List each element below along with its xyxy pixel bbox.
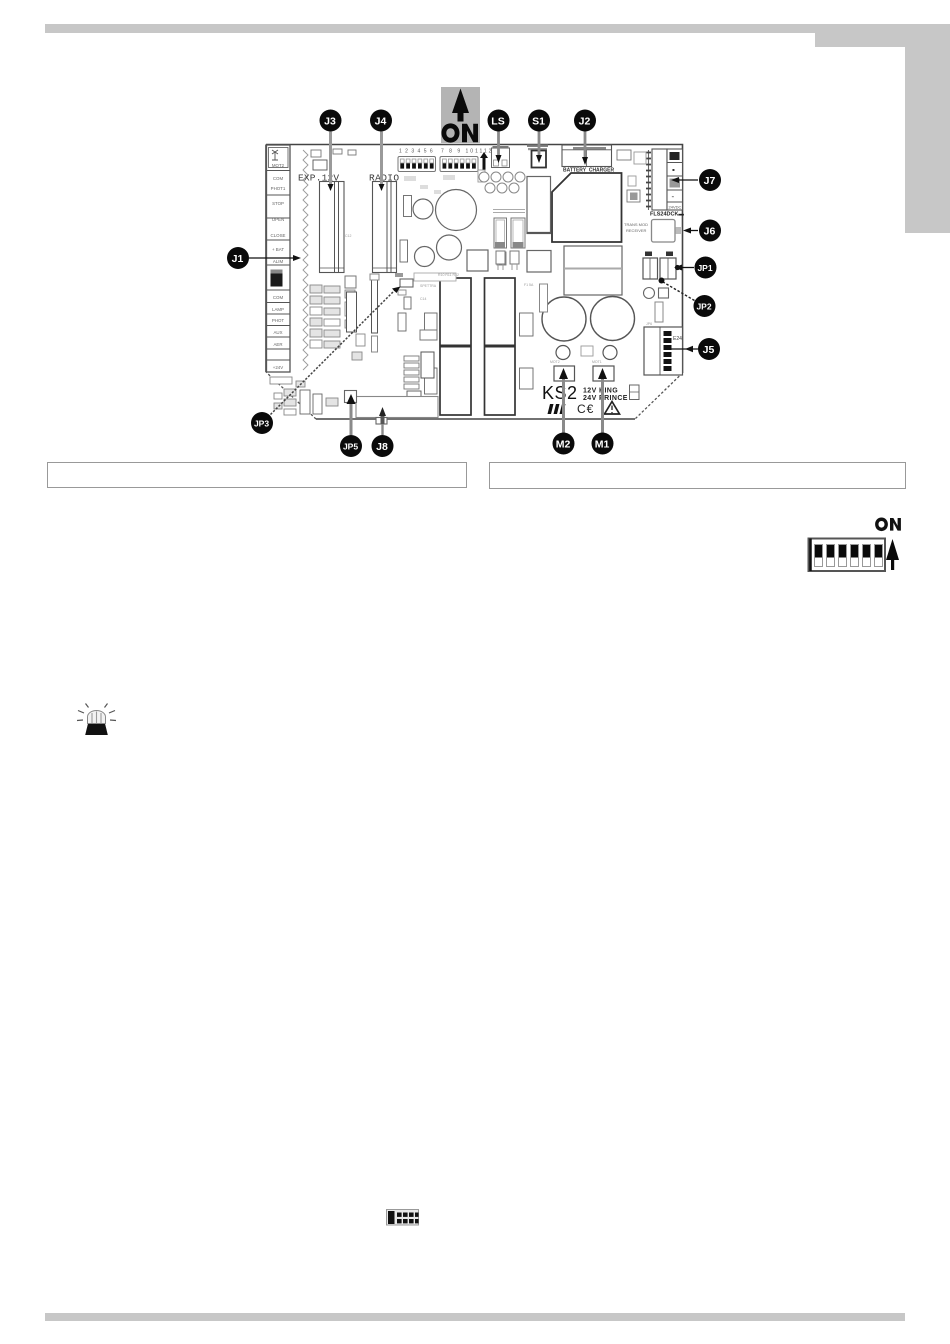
svg-text:JP3: JP3 bbox=[254, 419, 269, 429]
svg-text:J2: J2 bbox=[579, 116, 591, 128]
svg-text:J8: J8 bbox=[376, 441, 388, 453]
svg-text:JP2: JP2 bbox=[696, 302, 711, 312]
svg-text:-: - bbox=[672, 192, 675, 201]
svg-text:OPEN: OPEN bbox=[272, 217, 284, 222]
svg-text:7 8 9 101112: 7 8 9 101112 bbox=[441, 149, 493, 155]
svg-text:S1: S1 bbox=[532, 116, 545, 128]
svg-text:J7: J7 bbox=[704, 175, 716, 187]
svg-text:LAMP: LAMP bbox=[272, 307, 284, 312]
svg-text:KS2: KS2 bbox=[542, 383, 578, 403]
svg-text:J3: J3 bbox=[324, 116, 336, 128]
svg-text:M1: M1 bbox=[595, 439, 610, 451]
svg-text:E24: E24 bbox=[673, 336, 682, 342]
svg-text:R10 R11 R12: R10 R11 R12 bbox=[438, 273, 459, 277]
svg-text:MOT1: MOT1 bbox=[592, 360, 602, 364]
svg-text:TRANS MOD: TRANS MOD bbox=[624, 222, 648, 227]
svg-text:COM: COM bbox=[273, 176, 284, 181]
svg-text:J1: J1 bbox=[232, 253, 244, 265]
svg-text:C12: C12 bbox=[345, 234, 351, 238]
svg-text:123456: 123456 bbox=[399, 149, 436, 155]
svg-text:▪: ▪ bbox=[672, 166, 675, 175]
svg-text:JP5: JP5 bbox=[343, 442, 358, 452]
svg-text:RECEIVER: RECEIVER bbox=[626, 228, 647, 233]
svg-text:+24V: +24V bbox=[273, 365, 283, 370]
svg-text:M2: M2 bbox=[556, 439, 571, 451]
svg-text:AER: AER bbox=[273, 342, 282, 347]
svg-text:CLOSE: CLOSE bbox=[271, 233, 286, 238]
svg-text:JP6: JP6 bbox=[646, 322, 652, 326]
svg-text:COM: COM bbox=[273, 295, 284, 300]
svg-text:F1 5A: F1 5A bbox=[524, 283, 534, 287]
svg-text:MOT2: MOT2 bbox=[272, 163, 285, 168]
svg-text:PHOT: PHOT bbox=[272, 318, 285, 323]
svg-text:24V PRINCE: 24V PRINCE bbox=[583, 395, 628, 402]
svg-text:J4: J4 bbox=[375, 116, 387, 128]
svg-text:MOT2: MOT2 bbox=[550, 360, 560, 364]
svg-text:SPETTRA: SPETTRA bbox=[420, 284, 437, 288]
svg-text:JP1: JP1 bbox=[697, 263, 712, 273]
svg-text:PHOT1: PHOT1 bbox=[271, 186, 286, 191]
svg-text:24VDC: 24VDC bbox=[669, 205, 682, 210]
svg-text:ALIM: ALIM bbox=[273, 259, 284, 264]
svg-text:J5: J5 bbox=[703, 344, 715, 356]
svg-text:STOP: STOP bbox=[272, 201, 284, 206]
svg-text:LS: LS bbox=[491, 116, 504, 128]
svg-text:AUX: AUX bbox=[273, 330, 282, 335]
svg-text:J6: J6 bbox=[704, 226, 716, 238]
svg-text:+ BAT: + BAT bbox=[272, 247, 284, 252]
svg-text:FLS24DCK▬: FLS24DCK▬ bbox=[650, 212, 684, 218]
svg-text:C€: C€ bbox=[577, 402, 594, 416]
svg-text:12V KING: 12V KING bbox=[583, 388, 618, 395]
svg-text:C14: C14 bbox=[420, 297, 426, 301]
